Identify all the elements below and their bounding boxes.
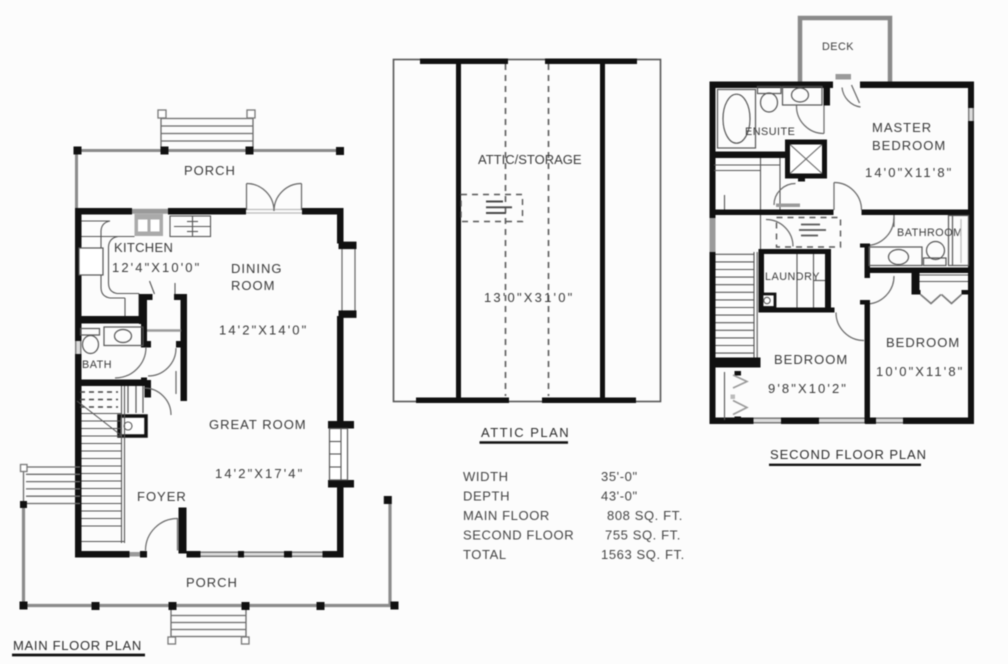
svg-text:FOYER: FOYER bbox=[137, 489, 187, 504]
svg-text:WIDTH: WIDTH bbox=[463, 469, 509, 484]
svg-text:12'4"X10'0": 12'4"X10'0" bbox=[112, 260, 201, 275]
svg-text:PORCH: PORCH bbox=[186, 575, 238, 590]
svg-text:DECK: DECK bbox=[822, 41, 854, 53]
svg-text:14'0"X11'8": 14'0"X11'8" bbox=[865, 165, 953, 180]
svg-text:1563 SQ. FT.: 1563 SQ. FT. bbox=[601, 547, 685, 562]
svg-text:BEDROOM: BEDROOM bbox=[872, 138, 946, 153]
svg-text:43'-0": 43'-0" bbox=[601, 489, 638, 504]
svg-text:MASTER: MASTER bbox=[872, 120, 932, 135]
svg-text:SECOND FLOOR: SECOND FLOOR bbox=[463, 528, 574, 543]
svg-text:BEDROOM: BEDROOM bbox=[774, 352, 848, 367]
svg-text:KITCHEN: KITCHEN bbox=[114, 240, 173, 255]
svg-text:ENSUITE: ENSUITE bbox=[745, 126, 795, 138]
svg-text:9'8"X10'2": 9'8"X10'2" bbox=[768, 381, 848, 396]
svg-text:TOTAL: TOTAL bbox=[463, 547, 507, 562]
svg-text:10'0"X11'8": 10'0"X11'8" bbox=[876, 364, 964, 379]
svg-text:MAIN FLOOR PLAN: MAIN FLOOR PLAN bbox=[13, 638, 142, 653]
svg-text:MAIN FLOOR: MAIN FLOOR bbox=[463, 508, 550, 523]
svg-text:BATH: BATH bbox=[82, 359, 112, 371]
svg-text:35'-0": 35'-0" bbox=[601, 469, 638, 484]
svg-text:GREAT ROOM: GREAT ROOM bbox=[209, 417, 307, 432]
svg-text:13'0"X31'0": 13'0"X31'0" bbox=[484, 290, 574, 305]
svg-text:BEDROOM: BEDROOM bbox=[886, 335, 960, 350]
svg-text:PORCH: PORCH bbox=[184, 163, 236, 178]
svg-text:LAUNDRY: LAUNDRY bbox=[765, 271, 820, 283]
svg-text:808 SQ. FT.: 808 SQ. FT. bbox=[607, 508, 683, 523]
svg-text:ATTIC/STORAGE: ATTIC/STORAGE bbox=[478, 152, 582, 167]
svg-text:DINING: DINING bbox=[231, 261, 283, 276]
svg-text:14'2"X14'0": 14'2"X14'0" bbox=[219, 323, 308, 338]
svg-text:SECOND FLOOR PLAN: SECOND FLOOR PLAN bbox=[770, 447, 927, 462]
svg-text:ATTIC PLAN: ATTIC PLAN bbox=[481, 425, 570, 440]
svg-text:14'2"X17'4": 14'2"X17'4" bbox=[215, 466, 304, 481]
svg-text:755 SQ. FT.: 755 SQ. FT. bbox=[605, 528, 681, 543]
svg-text:ROOM: ROOM bbox=[231, 278, 275, 293]
svg-text:DEPTH: DEPTH bbox=[463, 489, 510, 504]
